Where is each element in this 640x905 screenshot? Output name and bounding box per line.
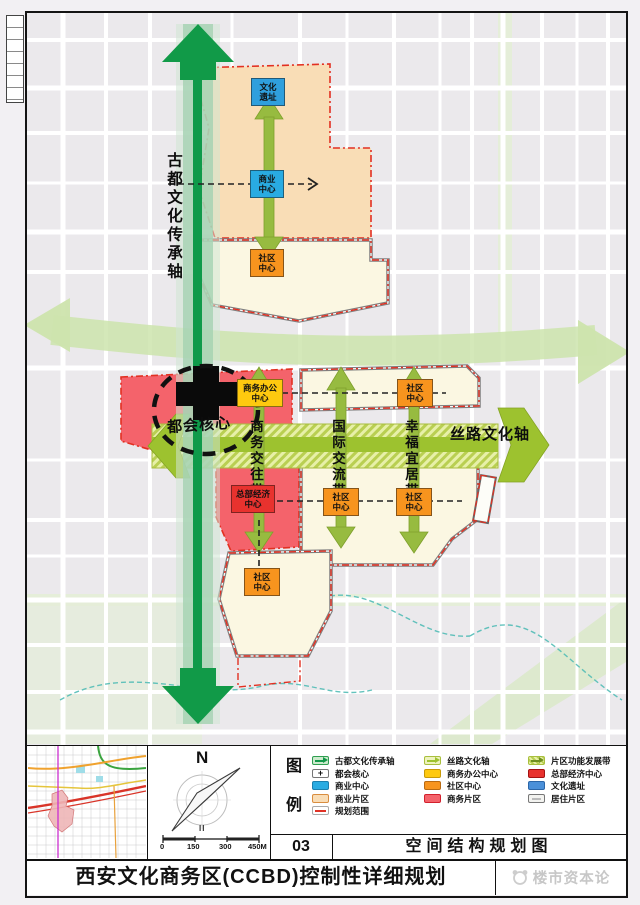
olive-hatch-arrow-icon <box>528 756 545 765</box>
vertical-axis-label: 古都文化传承轴 <box>162 152 184 282</box>
scale-tick-0: 0 <box>160 842 164 851</box>
marker-commerce-center: 商业 中心 <box>250 170 284 198</box>
residential-district-bottom <box>219 551 331 656</box>
scale-bar <box>162 834 260 844</box>
band-label-international: 国际交流带 <box>327 419 347 499</box>
watermark-text: 楼市资本论 <box>533 867 611 888</box>
legend-item-residential-district: 居住片区 <box>528 790 585 801</box>
watermark-logo: 楼市资本论 <box>495 859 626 895</box>
marker-community-center: 社区 中心 <box>396 488 432 516</box>
scale-tick-300: 300 <box>219 842 232 851</box>
watermark-icon <box>511 868 529 886</box>
legend-title-char-1: 图 <box>286 752 302 776</box>
marker-community-center: 社区 中心 <box>244 568 280 596</box>
legend-item-development-band: 片区功能发展带 <box>528 752 611 763</box>
metro-core-label: 都会核心 <box>166 412 231 437</box>
cyan-swatch-icon <box>312 781 329 790</box>
panel-divider <box>27 745 626 746</box>
orange-swatch-icon <box>424 781 441 790</box>
legend-title-char-2: 例 <box>286 791 302 815</box>
legend-item-metro-core: 都会核心 <box>312 765 369 776</box>
red-dash-boundary-icon <box>312 806 329 815</box>
legend-item-community-center: 社区中心 <box>424 777 481 788</box>
panel-divider <box>147 745 148 859</box>
marker-community-center: 社区 中心 <box>250 249 284 277</box>
sheet-number: 03 <box>270 834 332 859</box>
inset-location-map <box>28 746 146 858</box>
legend-item-hq-economy-center: 总部经济中心 <box>528 765 602 776</box>
scale-tick-450m: 450M <box>248 842 267 851</box>
legend-item-culture-site: 文化遗址 <box>528 777 585 788</box>
north-label: N <box>196 748 208 768</box>
marker-community-center: 社区 中心 <box>323 488 359 516</box>
legend-item-commerce-center: 商业中心 <box>312 777 369 788</box>
marker-culture-site: 文化 遗址 <box>251 78 285 106</box>
residential-district-top <box>197 240 388 321</box>
band-label-livable: 幸福宜居带 <box>400 419 420 499</box>
white-swatch-icon <box>528 794 545 803</box>
olive-axis-arrow-icon <box>424 756 441 765</box>
marker-hq-economy-center: 总部经济 中心 <box>231 485 275 513</box>
scale-tick-150: 150 <box>187 842 200 851</box>
legend-item-business-district: 商务片区 <box>424 790 481 801</box>
project-title: 西安文化商务区(CCBD)控制性详细规划 <box>27 859 495 895</box>
sheet-margin-table <box>6 15 24 103</box>
planning-sheet: 古都文化传承轴 都会核心 丝路文化轴 商务交往带 国际交流带 幸福宜居带 文化 … <box>0 0 640 905</box>
legend-item-commercial-district: 商业片区 <box>312 790 369 801</box>
legend-item-office-center: 商务办公中心 <box>424 765 498 776</box>
silk-road-axis-label: 丝路文化轴 <box>450 423 530 444</box>
residential-district-mid-top <box>301 366 479 410</box>
blue-swatch-icon <box>528 781 545 790</box>
pink-swatch-icon <box>424 794 441 803</box>
map-drawing <box>26 12 627 745</box>
legend-item-planning-boundary: 规划范围 <box>312 802 369 813</box>
sheet-name: 空间结构规划图 <box>332 834 626 859</box>
legend-item-heritage-axis: 古都文化传承轴 <box>312 752 395 763</box>
green-axis-arrow-icon <box>312 756 329 765</box>
compass-sub-mark: II <box>199 824 205 833</box>
marker-office-center: 商务办公 中心 <box>237 379 283 407</box>
marker-community-center: 社区 中心 <box>397 379 433 407</box>
legend-item-silk-road-axis: 丝路文化轴 <box>424 752 490 763</box>
